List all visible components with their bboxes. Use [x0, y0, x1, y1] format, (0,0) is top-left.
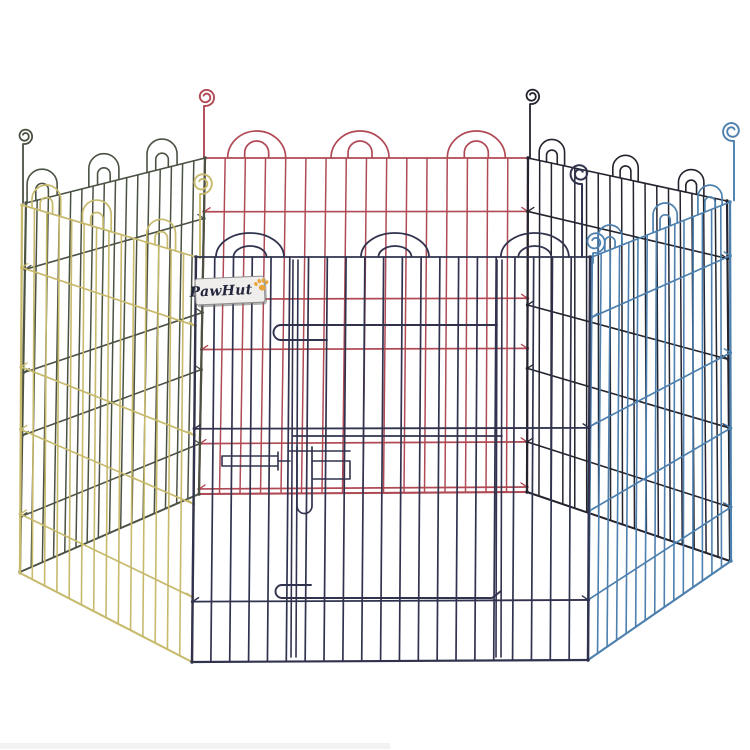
floor-shadow-smudge	[0, 743, 390, 749]
playpen-illustration	[0, 0, 750, 750]
brand-label-text: PawHut	[189, 283, 253, 300]
door-bottom-rail-and-latch-handle	[276, 585, 502, 598]
front-right-panel-blue	[586, 123, 739, 662]
door-right-edge-wires	[496, 260, 502, 657]
paw-print-icon	[253, 277, 271, 293]
front-door-hardware	[222, 260, 502, 657]
latch-bolt-hairpin	[297, 447, 312, 514]
brand-label: PawHut	[194, 275, 265, 305]
front-center-panel-navy	[190, 165, 591, 664]
product-photo-canvas: PawHut	[0, 0, 750, 750]
